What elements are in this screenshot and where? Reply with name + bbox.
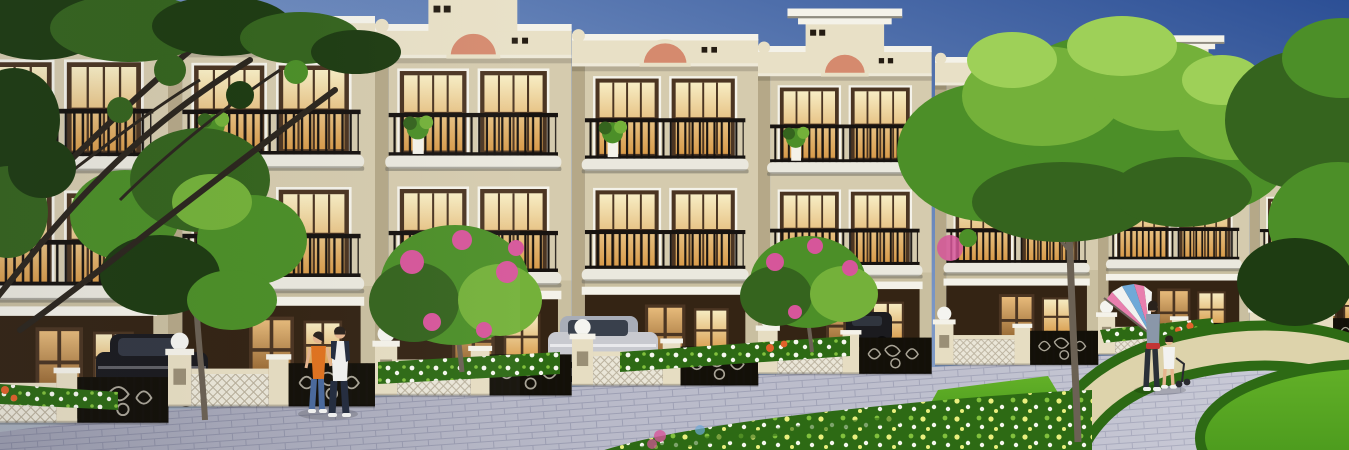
dusk-shading: [0, 0, 520, 450]
architectural-render-banner: [0, 0, 1349, 450]
